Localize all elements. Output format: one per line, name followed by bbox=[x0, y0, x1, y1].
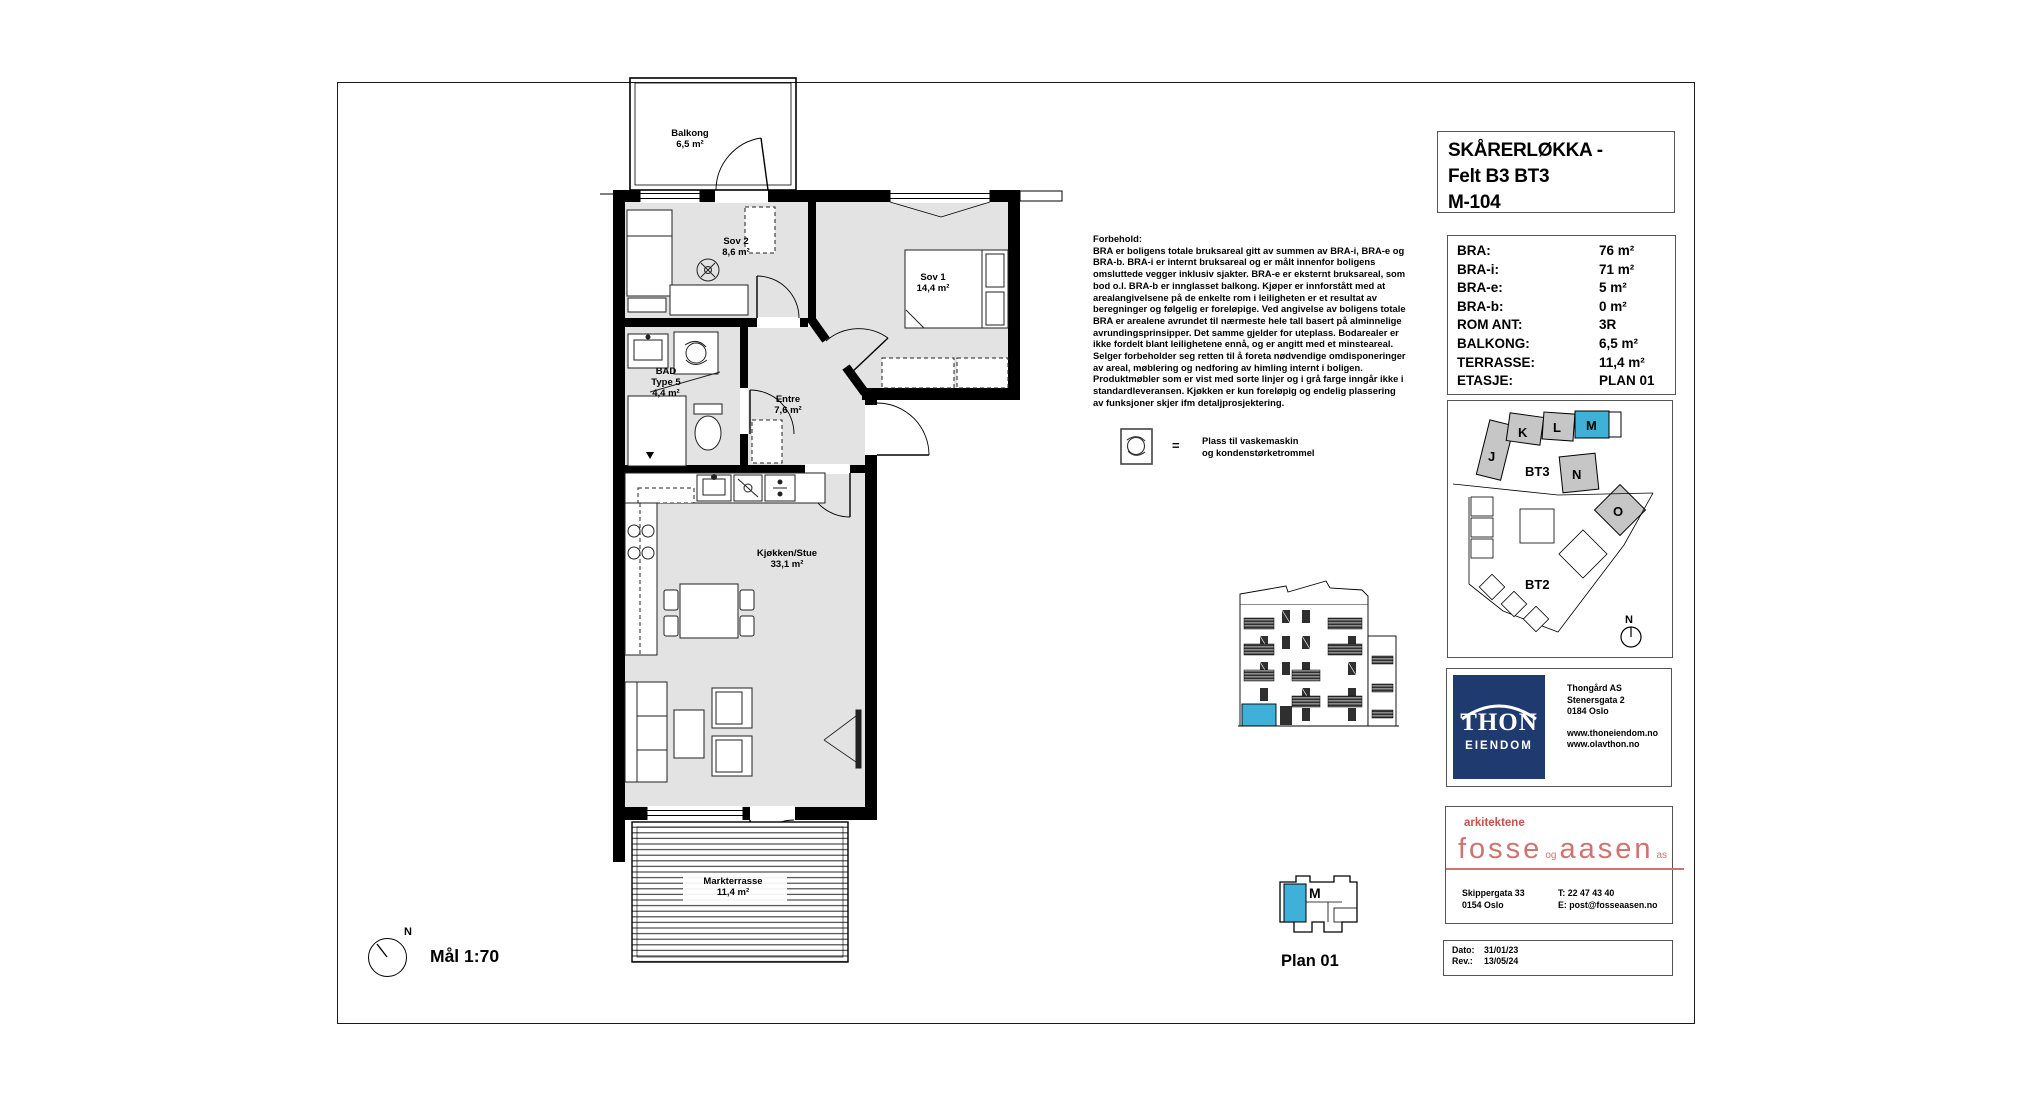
floorplan-sheet: Balkong6,5 m² Sov 28,6 m² Sov 114,4 m² B… bbox=[0, 0, 2021, 1106]
legend-text: Plass til vaskemaskin og kondenstørketro… bbox=[1202, 435, 1315, 459]
info-row: BRA-e:5 m² bbox=[1457, 279, 1675, 298]
floor-plan bbox=[600, 70, 1080, 980]
north-label: N bbox=[404, 926, 412, 938]
thon-eiendom-logo: THON EIENDOM bbox=[1453, 675, 1545, 779]
washing-machine-legend-icon bbox=[1120, 428, 1154, 466]
site-label-n: N bbox=[1572, 467, 1581, 482]
highlighted-unit-keyplan bbox=[1284, 884, 1306, 922]
architect-contact: T: 22 47 43 40 E: post@fosseaasen.no bbox=[1558, 887, 1658, 911]
info-row: BRA:76 m² bbox=[1457, 242, 1675, 261]
developer-panel: THON EIENDOM Thongård AS Stenersgata 2 0… bbox=[1446, 668, 1672, 787]
info-row: BRA-b:0 m² bbox=[1457, 298, 1675, 317]
info-row: BALKONG:6,5 m² bbox=[1457, 335, 1675, 354]
balcony-railing bbox=[630, 78, 796, 190]
project-title-line1: SKÅRERLØKKA - bbox=[1448, 138, 1674, 164]
site-label-k: K bbox=[1518, 425, 1528, 440]
site-north-label: N bbox=[1625, 614, 1633, 626]
room-label-entre: Entre7,6 m² bbox=[774, 394, 801, 416]
room-label-sov1: Sov 114,4 m² bbox=[917, 272, 950, 294]
site-label-l: L bbox=[1553, 420, 1561, 435]
room-label-bad: BADType 54,4 m² bbox=[651, 366, 680, 399]
architect-tagline: arkitektene bbox=[1464, 817, 1525, 829]
project-title-line2: Felt B3 BT3 bbox=[1448, 164, 1674, 190]
revision-row: Rev.:13/05/24 bbox=[1452, 956, 1672, 967]
title-block: SKÅRERLØKKA - Felt B3 BT3 M-104 bbox=[1437, 131, 1675, 213]
site-label-j: J bbox=[1488, 449, 1495, 464]
site-label-m: M bbox=[1586, 418, 1597, 433]
equals-sign: = bbox=[1172, 438, 1180, 453]
room-label-kjokken: Kjøkken/Stue33,1 m² bbox=[757, 548, 817, 570]
keyplan-unit-label: M bbox=[1309, 885, 1321, 901]
developer-info: Thongård AS Stenersgata 2 0184 Oslo www.… bbox=[1567, 683, 1658, 751]
disclaimer: Forbehold: BRA er boligens totale bruksa… bbox=[1093, 233, 1408, 409]
info-row: ETASJE:PLAN 01 bbox=[1457, 372, 1675, 391]
architect-address: Skippergata 33 0154 Oslo bbox=[1462, 887, 1525, 911]
site-label-o: O bbox=[1613, 504, 1623, 519]
site-north-arrow-icon bbox=[1621, 627, 1641, 647]
revision-panel: Dato:31/01/23 Rev.:13/05/24 bbox=[1443, 940, 1673, 976]
north-arrow-icon bbox=[368, 938, 407, 977]
info-row: ROM ANT:3R bbox=[1457, 316, 1675, 335]
site-plan-panel: J K L M N O BT3 BT2 N bbox=[1447, 400, 1673, 658]
elevation-drawing bbox=[1236, 580, 1401, 730]
plan01-label: Plan 01 bbox=[1281, 952, 1391, 971]
fosse-aasen-logo: fosse og aasen as bbox=[1446, 833, 1684, 870]
room-label-balkong: Balkong6,5 m² bbox=[671, 128, 708, 150]
disclaimer-heading: Forbehold: bbox=[1093, 233, 1408, 245]
info-row: BRA-i:71 m² bbox=[1457, 261, 1675, 280]
area-info-panel: BRA:76 m² BRA-i:71 m² BRA-e:5 m² BRA-b:0… bbox=[1447, 235, 1676, 395]
key-plan: M bbox=[1276, 872, 1361, 952]
room-label-sov2: Sov 28,6 m² bbox=[722, 236, 749, 258]
architect-panel: arkitektene fosse og aasen as Skippergat… bbox=[1445, 806, 1673, 924]
disclaimer-body: BRA er boligens totale bruksareal gitt a… bbox=[1093, 245, 1408, 409]
room-label-markterrasse: Markterrasse11,4 m² bbox=[703, 876, 762, 898]
site-label-bt3: BT3 bbox=[1525, 464, 1550, 479]
scale-label: Mål 1:70 bbox=[430, 946, 499, 967]
revision-row: Dato:31/01/23 bbox=[1452, 945, 1672, 956]
highlighted-unit-elevation bbox=[1242, 704, 1276, 726]
info-row: TERRASSE:11,4 m² bbox=[1457, 354, 1675, 373]
project-title-line3: M-104 bbox=[1448, 190, 1674, 216]
site-plan: J K L M N O BT3 BT2 N bbox=[1448, 401, 1671, 656]
site-label-bt2: BT2 bbox=[1525, 577, 1550, 592]
